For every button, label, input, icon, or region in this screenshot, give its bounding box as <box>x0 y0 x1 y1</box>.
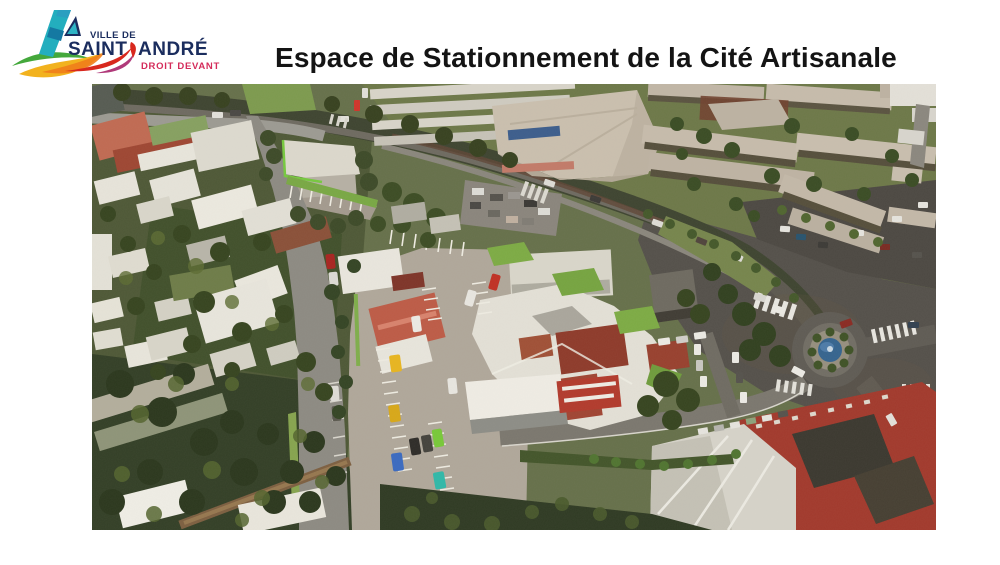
svg-text:DROIT DEVANT: DROIT DEVANT <box>141 61 220 72</box>
svg-text:ANDRÉ: ANDRÉ <box>138 38 208 60</box>
svg-text:SAINT: SAINT <box>68 39 128 60</box>
